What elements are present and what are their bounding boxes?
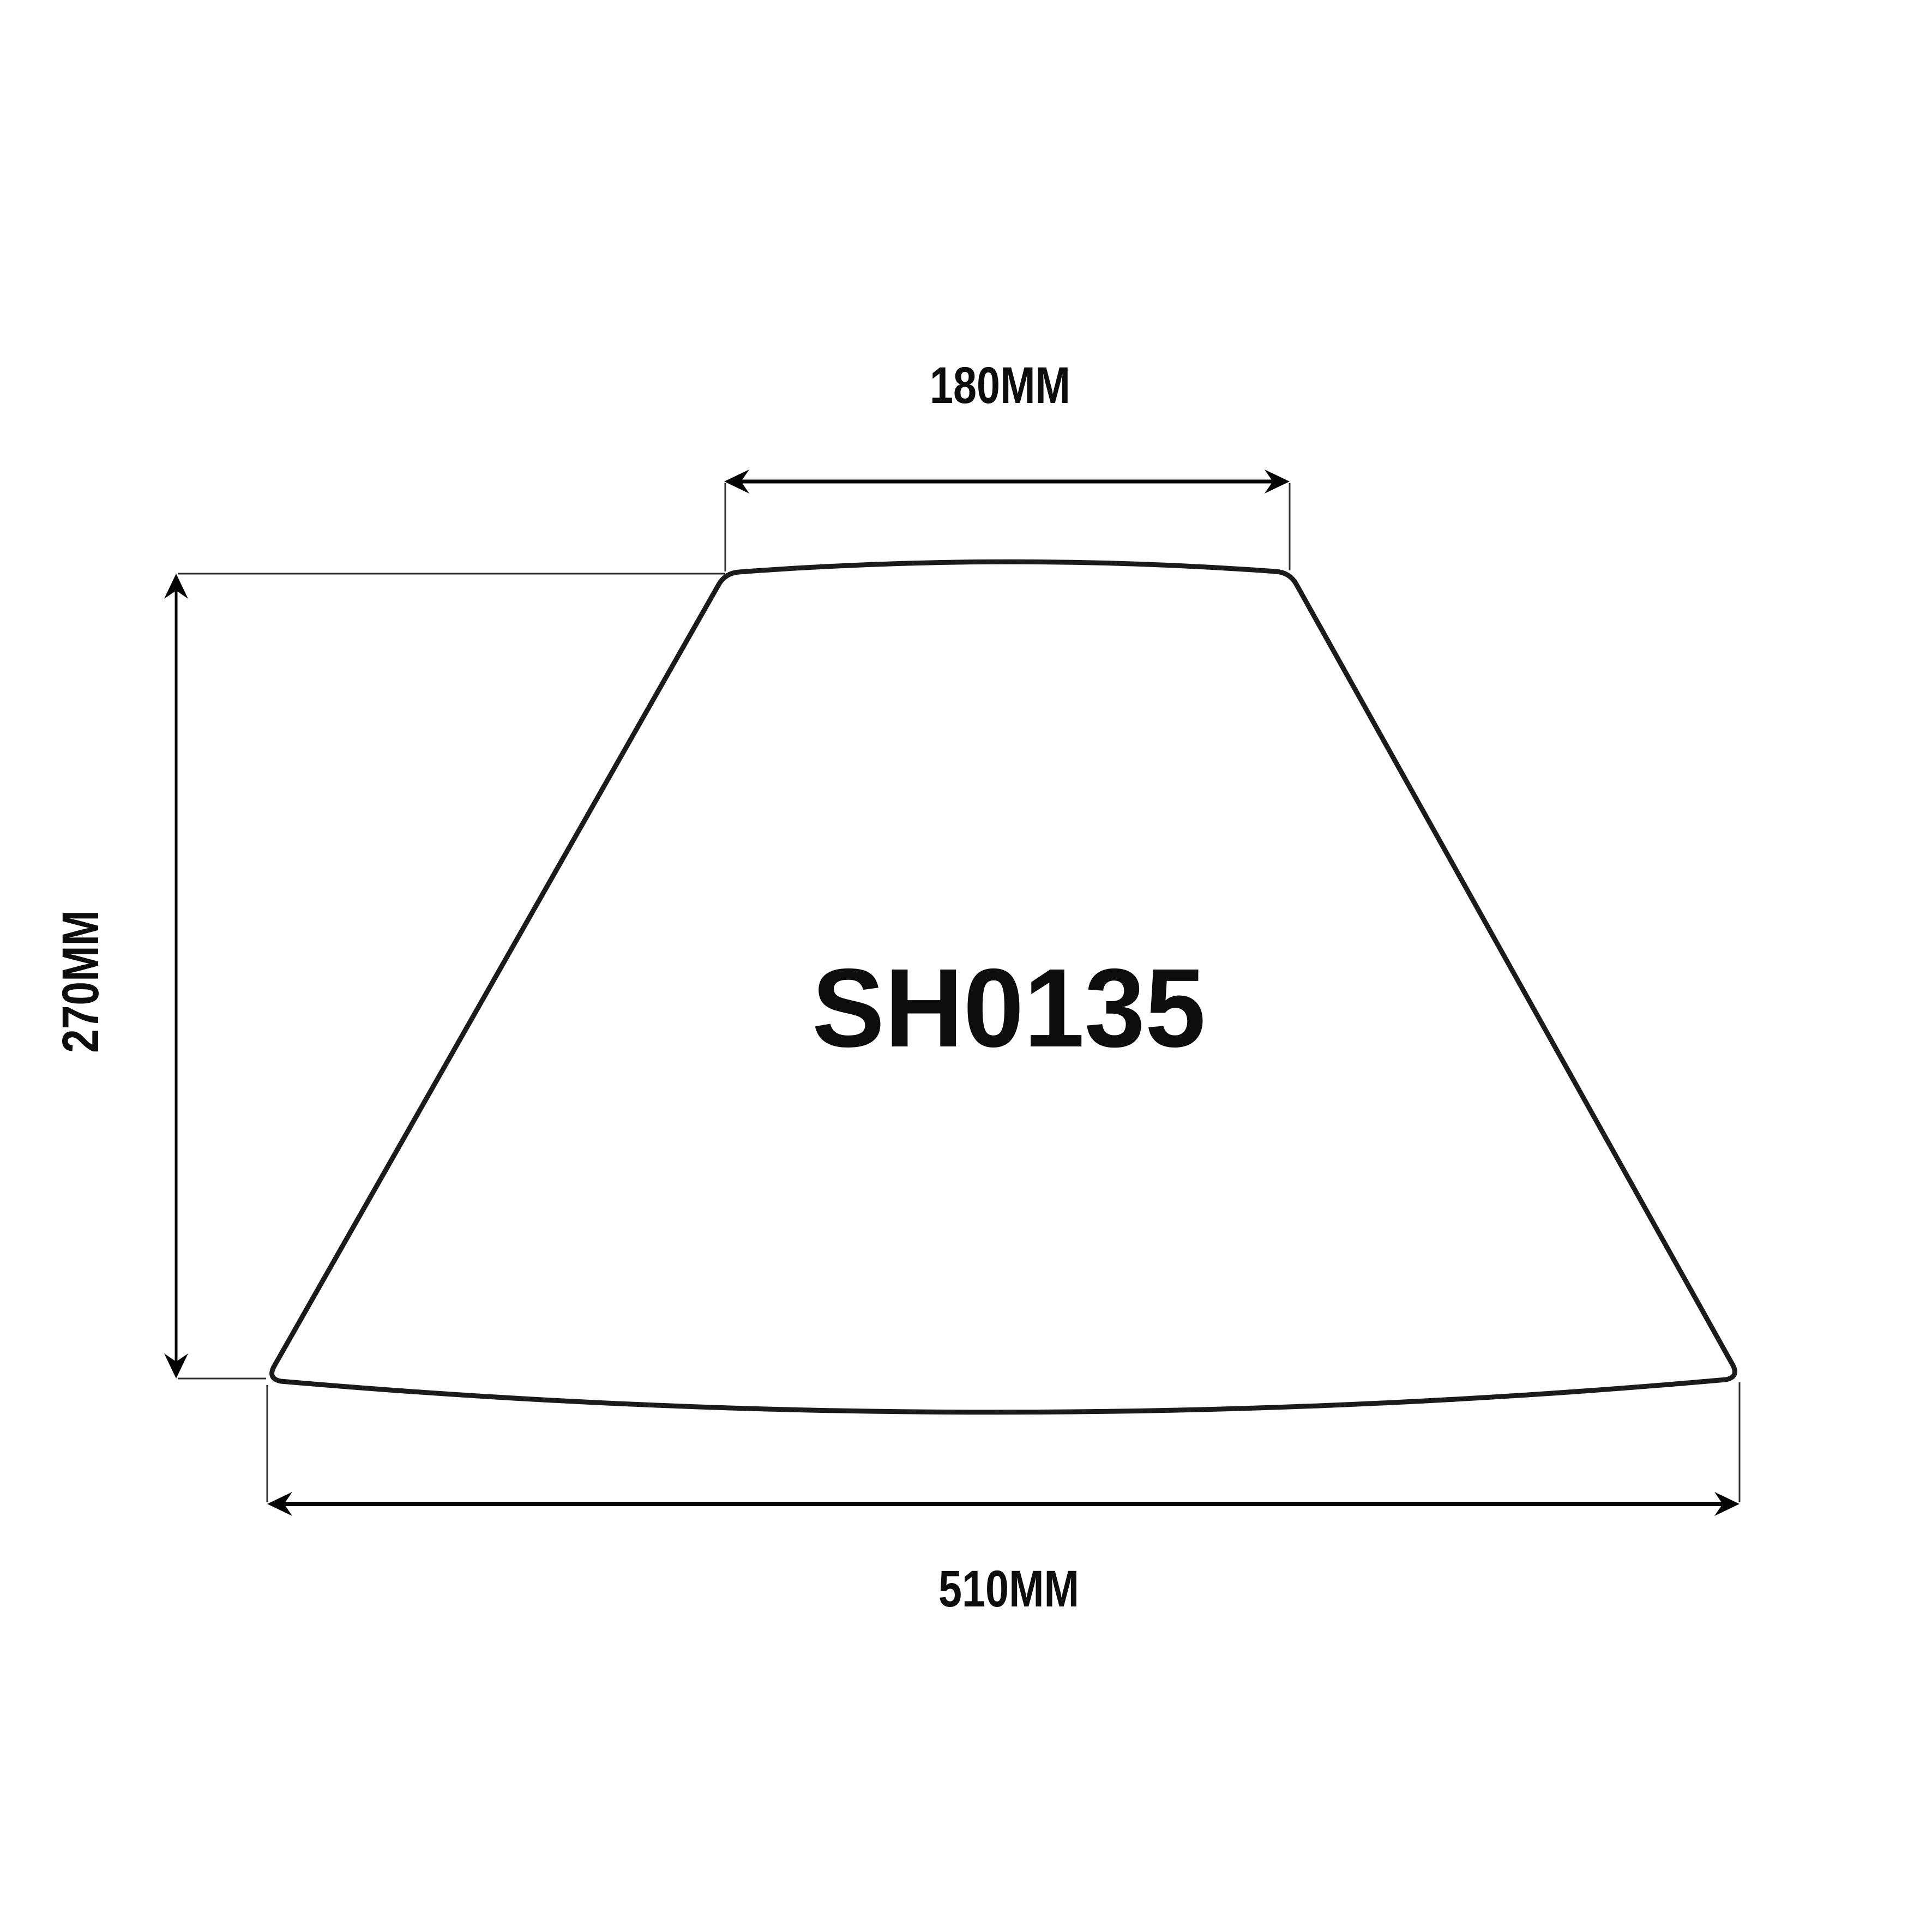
height-label: 270MM: [52, 910, 110, 1053]
top-width-label: 180MM: [930, 357, 1070, 414]
drawing-canvas: 180MM 270MM 510MM SH0135: [0, 0, 1932, 1932]
lampshade-dimension-diagram: 180MM 270MM 510MM SH0135: [0, 0, 1932, 1932]
model-number-label: SH0135: [812, 946, 1206, 1070]
bottom-width-label: 510MM: [938, 1560, 1079, 1618]
